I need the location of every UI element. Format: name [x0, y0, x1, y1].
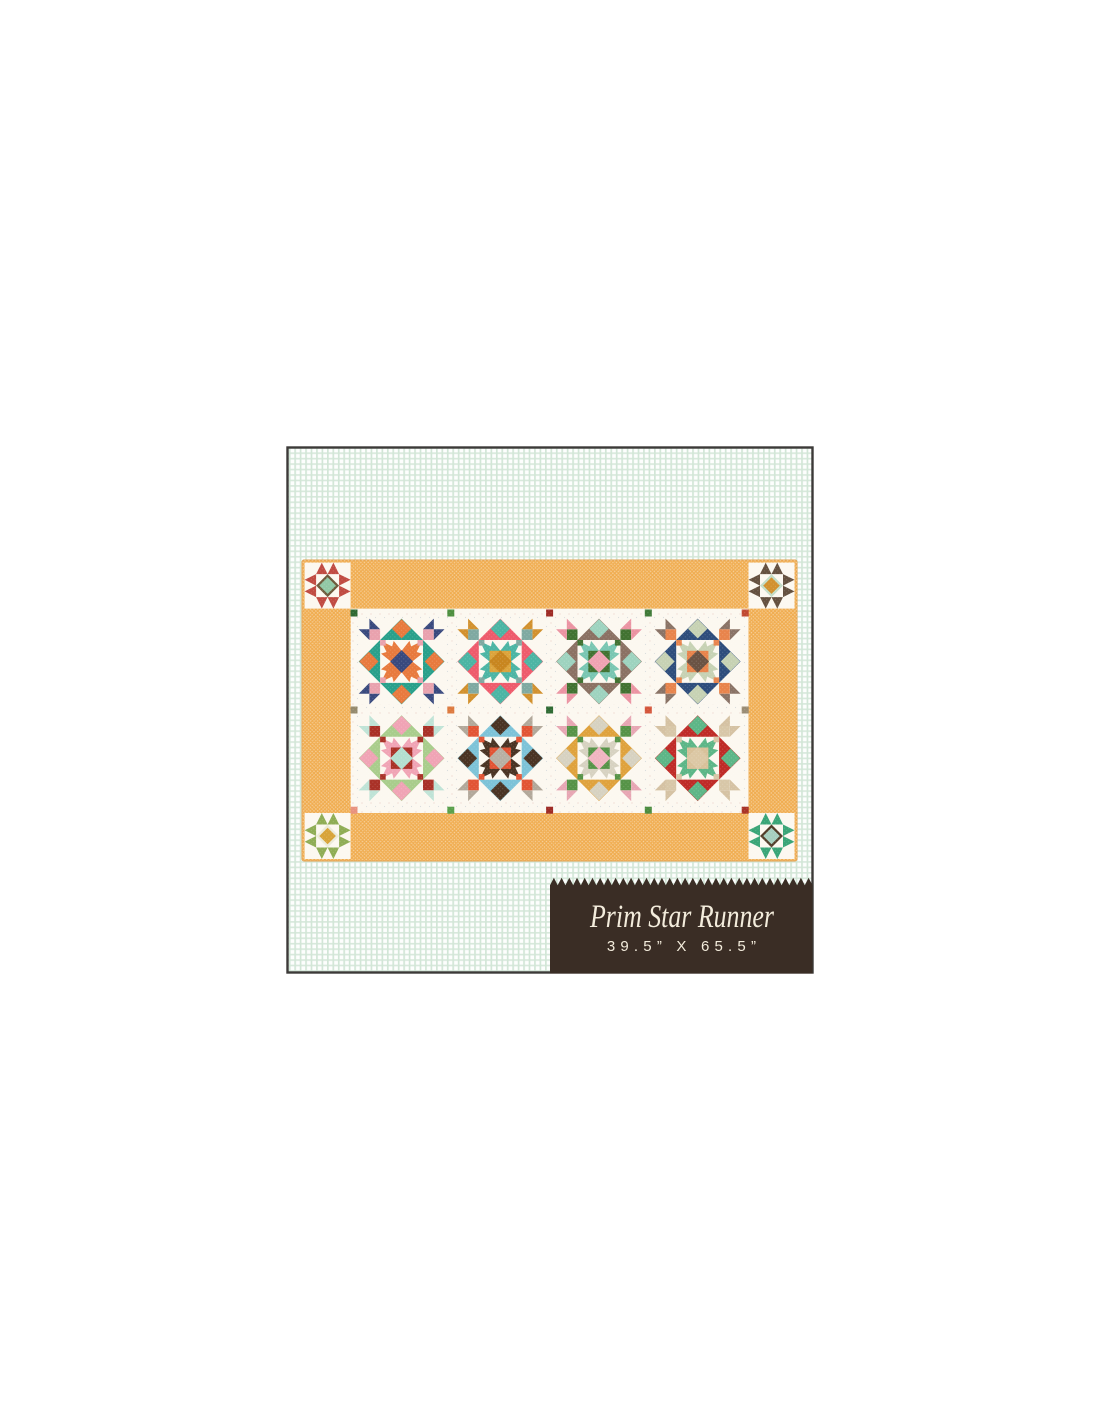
- svg-text:39.5” X 65.5”: 39.5” X 65.5”: [607, 938, 761, 955]
- svg-text:Prim Star Runner: Prim Star Runner: [589, 899, 774, 935]
